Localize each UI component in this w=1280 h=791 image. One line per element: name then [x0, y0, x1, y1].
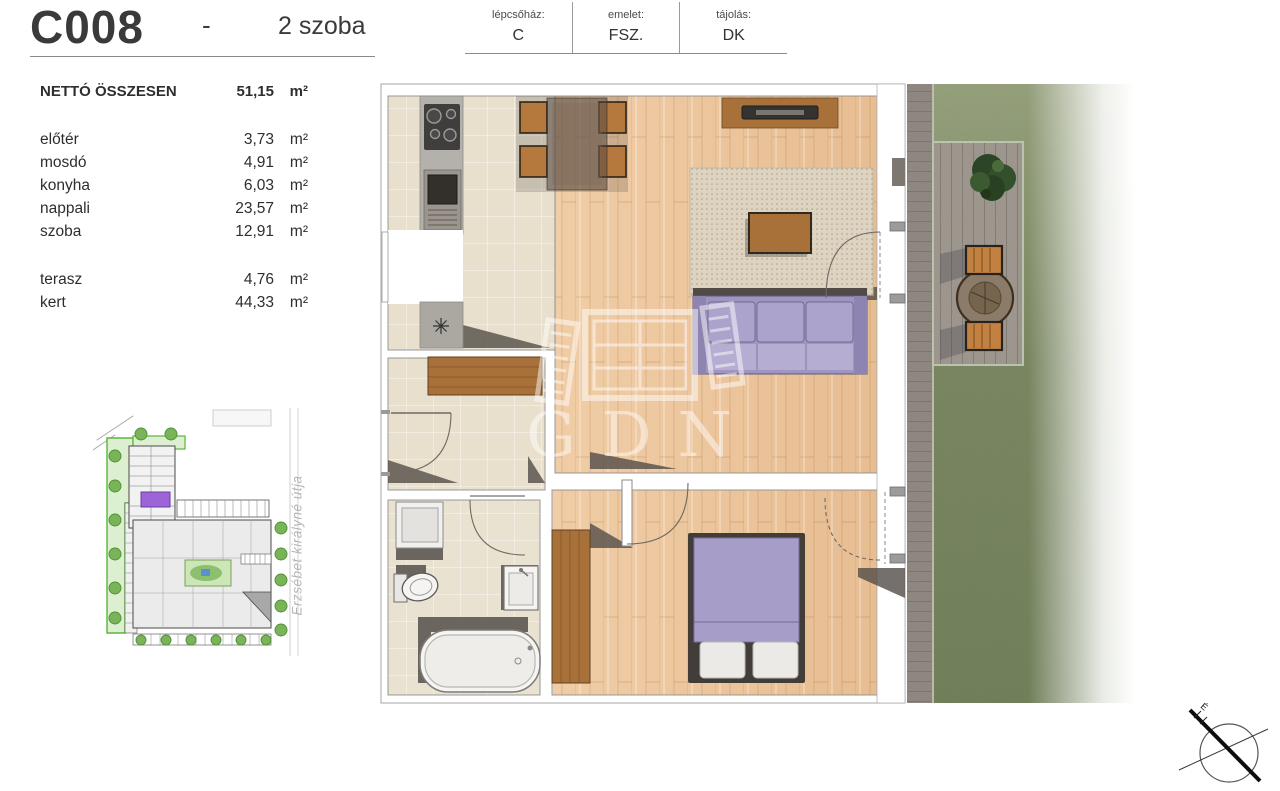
area-row-value: 4,76: [212, 268, 274, 291]
area-row-value: 44,33: [212, 291, 274, 314]
area-row-label: mosdó: [40, 151, 212, 174]
info-label: lépcsőház:: [465, 9, 572, 21]
area-row-unit: m²: [274, 220, 308, 243]
area-row-label: terasz: [40, 268, 212, 291]
area-row-unit: m²: [274, 151, 308, 174]
floor-plan: GDN: [380, 82, 1135, 705]
terrace-chair: [966, 246, 1002, 274]
area-row-unit: m²: [274, 174, 308, 197]
site-map: [93, 408, 305, 656]
area-total-value: 51,15: [212, 80, 274, 103]
unit-separator: -: [202, 10, 211, 41]
area-row-label: előtér: [40, 128, 212, 151]
pillow: [753, 642, 798, 678]
info-label: emelet:: [573, 9, 680, 21]
watermark-text: GDN: [526, 398, 758, 471]
area-row-value: 3,73: [212, 128, 274, 151]
info-value: FSZ.: [573, 27, 680, 45]
info-column: emelet: FSZ.: [572, 2, 680, 53]
area-row-label: konyha: [40, 174, 212, 197]
area-total-unit: m²: [274, 80, 308, 103]
area-outdoor-rows: terasz 4,76 m² kert 44,33 m²: [40, 268, 308, 314]
sink: [504, 566, 538, 610]
title-block: C008 - 2 szoba: [30, 0, 375, 57]
grass-fade: [1028, 82, 1135, 705]
area-row-label: nappali: [40, 197, 212, 220]
kitchen-window-recess: [388, 230, 463, 304]
area-room-rows: előtér 3,73 m² mosdó 4,91 m² konyha 6,03…: [40, 128, 308, 243]
area-row: konyha 6,03 m²: [40, 174, 308, 197]
area-row-unit: m²: [274, 197, 308, 220]
street-name: Erzsébet királyné útja: [290, 416, 305, 676]
area-row: mosdó 4,91 m²: [40, 151, 308, 174]
bed: [688, 533, 805, 683]
info-value: DK: [680, 27, 787, 45]
area-row-unit: m²: [274, 291, 308, 314]
area-row-value: 12,91: [212, 220, 274, 243]
area-row: szoba 12,91 m²: [40, 220, 308, 243]
unit-id: C008: [30, 0, 144, 54]
dining-set: [516, 96, 628, 192]
area-row-value: 23,57: [212, 197, 274, 220]
map-neighbor-building: [213, 410, 271, 426]
hall-bench: [428, 357, 542, 395]
area-row: előtér 3,73 m²: [40, 128, 308, 151]
info-table: lépcsőház: C emelet: FSZ. tájolás: DK: [465, 2, 787, 54]
compass-north-label: É: [1199, 701, 1210, 712]
washing-machine: [396, 502, 443, 548]
area-row: kert 44,33 m²: [40, 291, 308, 314]
kitchen-window: [382, 232, 388, 302]
area-row-value: 4,91: [212, 151, 274, 174]
terrace-chair: [966, 322, 1002, 350]
info-column: tájolás: DK: [679, 2, 787, 53]
area-total-row: NETTÓ ÖSSZESEN 51,15 m²: [40, 80, 308, 103]
info-label: tájolás:: [680, 9, 787, 21]
coffee-table: [749, 213, 811, 253]
area-row: terasz 4,76 m²: [40, 268, 308, 291]
garden: [907, 82, 1135, 705]
map-bottom-parking: [133, 634, 271, 645]
map-upper-building: [129, 446, 175, 528]
area-total-label: NETTÓ ÖSSZESEN: [40, 80, 212, 103]
info-column: lépcsőház: C: [465, 2, 572, 53]
area-table: NETTÓ ÖSSZESEN 51,15 m² előtér 3,73 m² m…: [40, 80, 308, 314]
map-parking-row: [177, 500, 269, 517]
info-value: C: [465, 27, 572, 45]
area-row-unit: m²: [274, 268, 308, 291]
area-row-value: 6,03: [212, 174, 274, 197]
compass-icon: É: [1176, 700, 1280, 790]
area-row: nappali 23,57 m²: [40, 197, 308, 220]
pillow: [700, 642, 745, 678]
wardrobe: [552, 530, 590, 683]
area-row-unit: m²: [274, 128, 308, 151]
area-row-label: kert: [40, 291, 212, 314]
bathtub: [420, 630, 540, 692]
unit-type: 2 szoba: [278, 12, 366, 41]
area-row-label: szoba: [40, 220, 212, 243]
map-unit-highlight: [141, 492, 170, 507]
